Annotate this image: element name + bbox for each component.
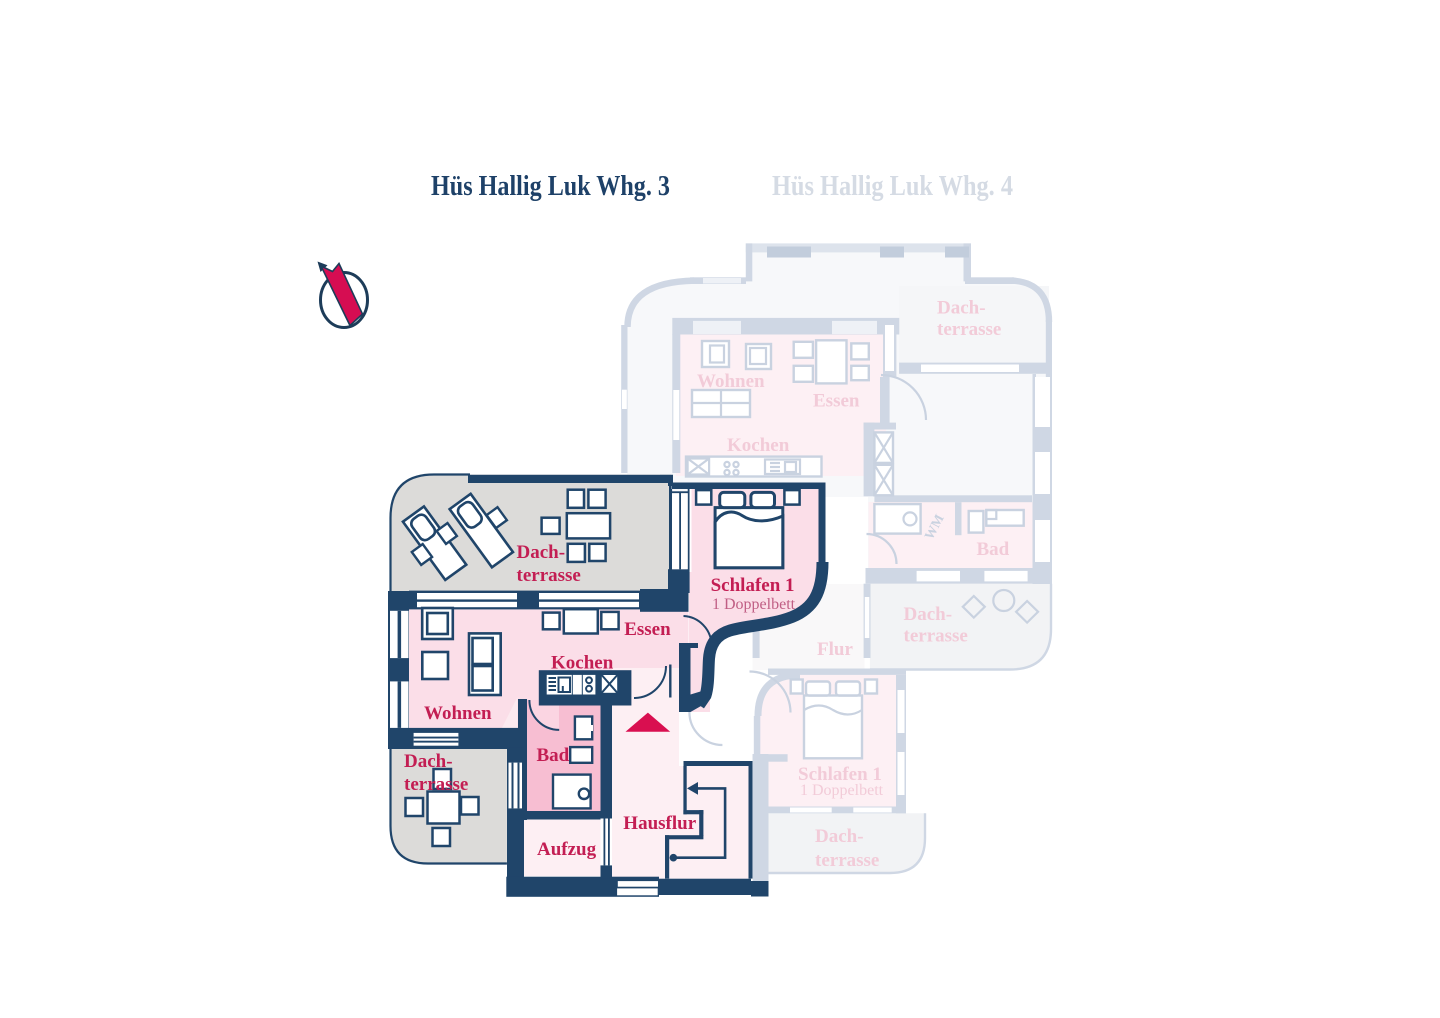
svg-text:terrasse: terrasse <box>815 850 879 871</box>
svg-text:Flur: Flur <box>817 639 853 660</box>
svg-text:Bad: Bad <box>537 745 570 766</box>
svg-text:terrasse: terrasse <box>404 774 468 795</box>
svg-text:Kochen: Kochen <box>551 653 614 674</box>
svg-text:Essen: Essen <box>624 619 671 640</box>
svg-text:terrasse: terrasse <box>904 626 968 647</box>
svg-text:1 Doppelbett: 1 Doppelbett <box>712 596 796 613</box>
svg-text:Essen: Essen <box>813 391 860 412</box>
svg-text:Dach-: Dach- <box>404 751 453 772</box>
svg-text:Dach-: Dach- <box>815 826 864 847</box>
svg-text:Wohnen: Wohnen <box>424 703 492 724</box>
svg-text:Hüs Hallig Luk Whg. 4: Hüs Hallig Luk Whg. 4 <box>772 171 1013 202</box>
svg-text:terrasse: terrasse <box>517 565 581 586</box>
svg-text:Dach-: Dach- <box>517 542 566 563</box>
svg-text:Dach-: Dach- <box>937 298 986 319</box>
svg-text:1 Doppelbett: 1 Doppelbett <box>800 782 884 799</box>
svg-text:Bad: Bad <box>977 539 1010 560</box>
svg-text:Hüs Hallig Luk Whg. 3: Hüs Hallig Luk Whg. 3 <box>431 171 670 202</box>
svg-text:Wohnen: Wohnen <box>697 371 765 392</box>
svg-text:Aufzug: Aufzug <box>537 839 597 860</box>
svg-text:Kochen: Kochen <box>727 435 790 456</box>
svg-text:Dach-: Dach- <box>904 604 953 625</box>
svg-text:Schlafen 1: Schlafen 1 <box>711 575 795 596</box>
svg-text:Hausflur: Hausflur <box>623 813 696 834</box>
svg-text:terrasse: terrasse <box>937 319 1001 340</box>
